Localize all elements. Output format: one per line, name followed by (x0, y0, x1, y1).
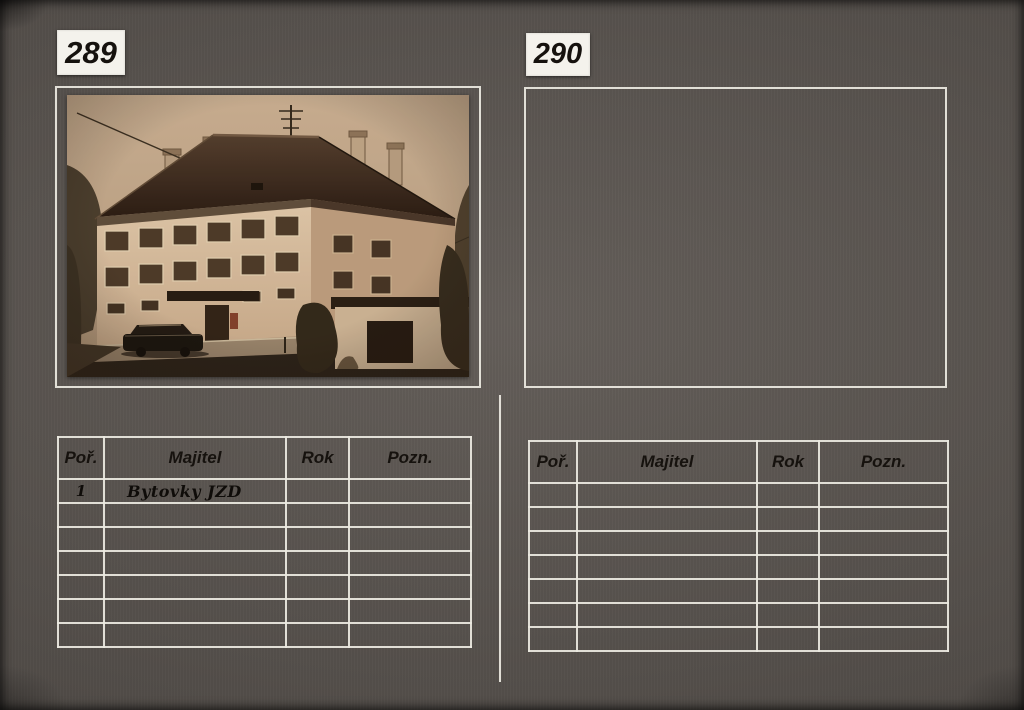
table-cell (349, 527, 471, 551)
table-cell (529, 483, 577, 507)
table-cell (819, 579, 948, 603)
table-cell (757, 507, 819, 531)
table-cell (529, 603, 577, 627)
photo-number: 289 (65, 35, 117, 71)
table-cell (819, 555, 948, 579)
building-photo-graphic (67, 95, 469, 377)
property-register-table: Poř.MajitelRokPozn. 1Bytovky JZD (57, 436, 472, 648)
center-divider-line (499, 395, 501, 682)
column-header: Poř. (529, 441, 577, 483)
column-header: Poř. (58, 437, 104, 479)
table-cell (757, 579, 819, 603)
table-cell (104, 623, 286, 647)
table-cell (577, 603, 757, 627)
table-cell (349, 479, 471, 503)
table-cell (104, 575, 286, 599)
table-cell (104, 503, 286, 527)
table-cell (757, 555, 819, 579)
property-register-table: Poř.MajitelRokPozn. (528, 440, 949, 652)
table-cell (286, 479, 349, 503)
column-header: Rok (286, 437, 349, 479)
table-cell (58, 503, 104, 527)
table-cell (104, 599, 286, 623)
photo-number-card: 289 (57, 30, 125, 75)
table-row (58, 575, 471, 599)
column-header: Majitel (577, 441, 757, 483)
table-cell (577, 579, 757, 603)
table-row (58, 503, 471, 527)
table-cell (529, 627, 577, 651)
table-cell (529, 531, 577, 555)
table-row (529, 603, 948, 627)
table-cell (104, 551, 286, 575)
table-cell: 1 (58, 479, 104, 503)
table-row (58, 551, 471, 575)
table-cell (58, 623, 104, 647)
table-cell (819, 483, 948, 507)
table-cell (577, 627, 757, 651)
table-cell (349, 575, 471, 599)
table-cell (529, 579, 577, 603)
table-header: Poř.MajitelRokPozn. (58, 437, 471, 479)
table-cell (58, 527, 104, 551)
table-row (529, 579, 948, 603)
table-cell (577, 531, 757, 555)
column-header: Pozn. (349, 437, 471, 479)
table-cell (58, 551, 104, 575)
table-cell (819, 531, 948, 555)
photo-number-card: 290 (526, 33, 590, 76)
table-header-row: Poř.MajitelRokPozn. (58, 437, 471, 479)
table-cell (286, 551, 349, 575)
table-cell (819, 507, 948, 531)
table-cell (757, 531, 819, 555)
table-body: 1Bytovky JZD (58, 479, 471, 647)
table-cell (349, 599, 471, 623)
table-cell (286, 623, 349, 647)
table-cell (819, 603, 948, 627)
table-header: Poř.MajitelRokPozn. (529, 441, 948, 483)
table-cell (577, 483, 757, 507)
table-cell (286, 503, 349, 527)
table-cell (529, 555, 577, 579)
table-cell (104, 527, 286, 551)
table-cell (819, 627, 948, 651)
table-row (529, 555, 948, 579)
photo-number: 290 (534, 38, 582, 71)
table-body (529, 483, 948, 651)
photo-frame (55, 86, 481, 388)
column-header: Rok (757, 441, 819, 483)
table-cell (577, 555, 757, 579)
table-cell (757, 627, 819, 651)
empty-photo-frame (524, 87, 947, 388)
table-cell (349, 503, 471, 527)
table-header-row: Poř.MajitelRokPozn. (529, 441, 948, 483)
table-cell (286, 527, 349, 551)
table-row (58, 623, 471, 647)
table-row (58, 599, 471, 623)
table-cell (286, 599, 349, 623)
table-cell (757, 603, 819, 627)
table-cell: Bytovky JZD (104, 479, 286, 503)
table-row (529, 483, 948, 507)
table-row (529, 531, 948, 555)
column-header: Majitel (104, 437, 286, 479)
table-row: 1Bytovky JZD (58, 479, 471, 503)
table-cell (349, 551, 471, 575)
table-cell (757, 483, 819, 507)
table-cell (286, 575, 349, 599)
table-cell (58, 599, 104, 623)
table-row (529, 627, 948, 651)
table-cell (577, 507, 757, 531)
album-page: 289 (0, 0, 1024, 710)
table-row (58, 527, 471, 551)
building-photo (67, 95, 469, 377)
column-header: Pozn. (819, 441, 948, 483)
table-row (529, 507, 948, 531)
table-cell (58, 575, 104, 599)
table-cell (529, 507, 577, 531)
table-cell (349, 623, 471, 647)
